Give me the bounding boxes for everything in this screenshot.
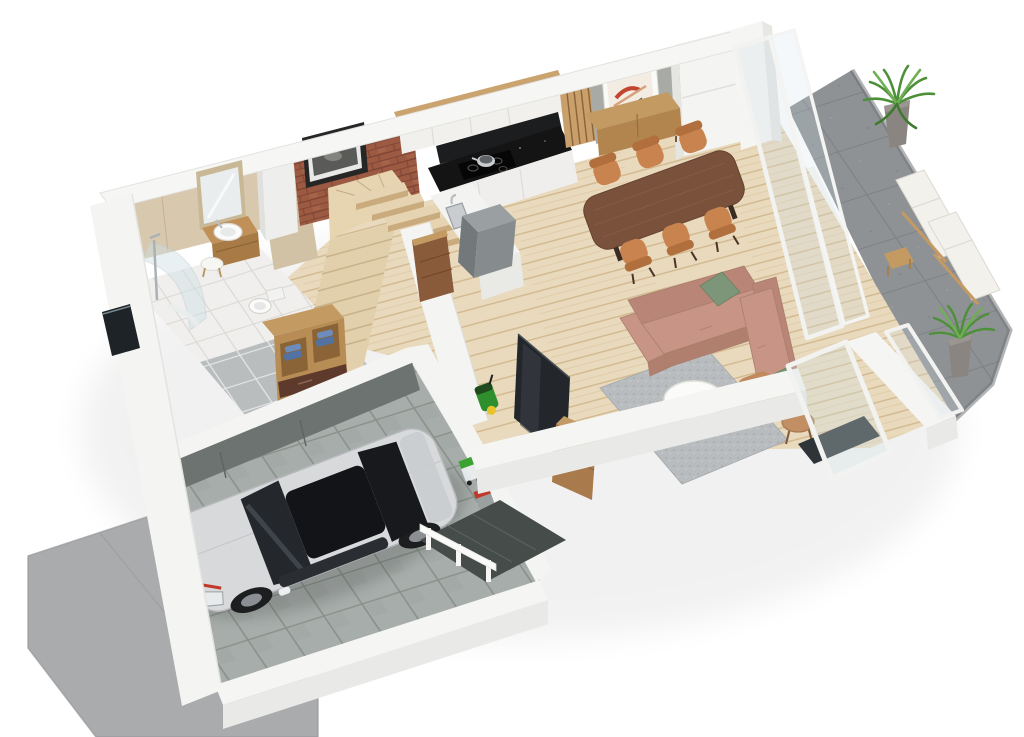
floor-plan-render: [0, 0, 1024, 737]
screenshot-root: [0, 0, 1024, 737]
extractor-cube: [458, 204, 516, 278]
